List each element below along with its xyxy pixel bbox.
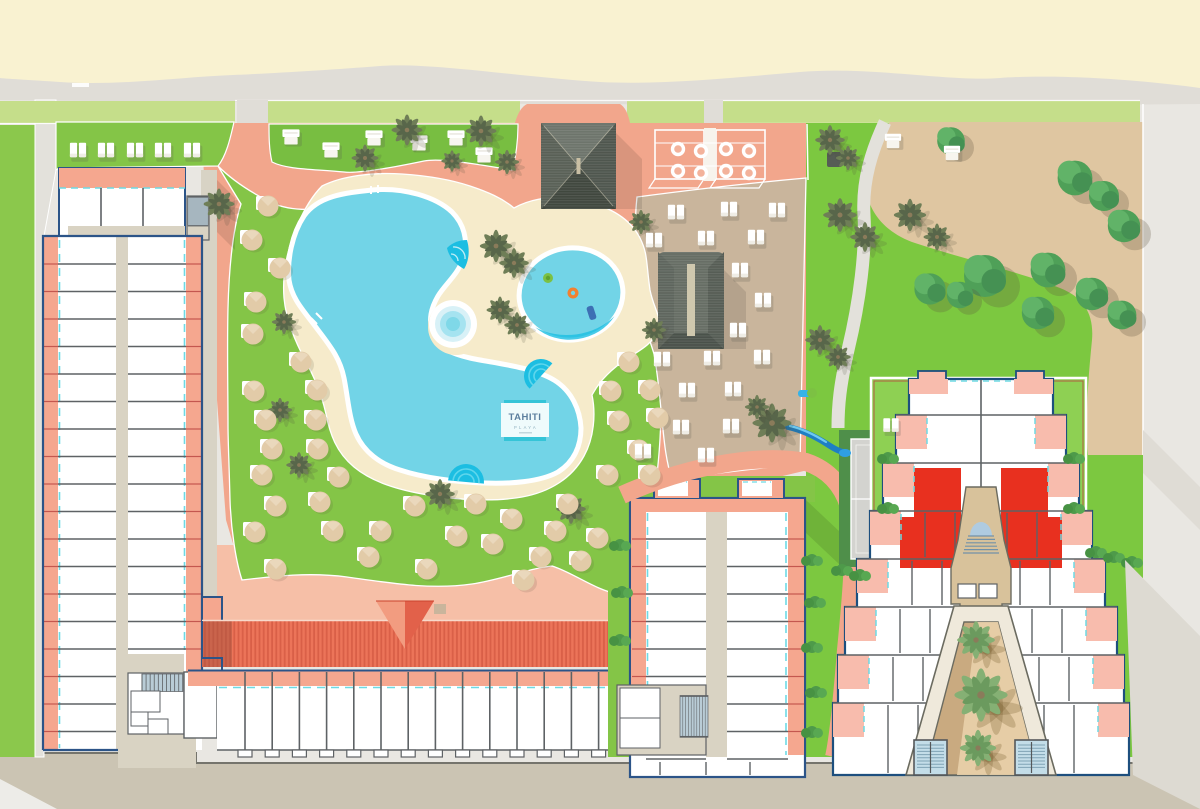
svg-text:PLAYA: PLAYA <box>514 425 538 430</box>
svg-text:TAHITI: TAHITI <box>509 412 542 423</box>
